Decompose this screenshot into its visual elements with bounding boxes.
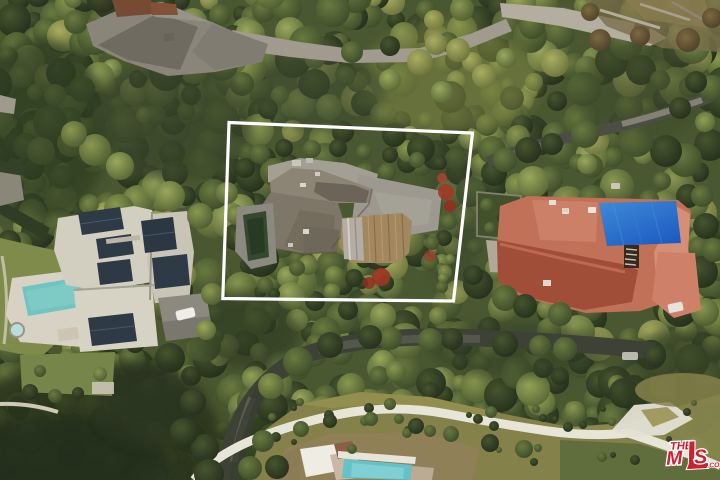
svg-text:M: M [666, 447, 684, 470]
svg-text:S: S [694, 446, 708, 469]
svg-text:.COM: .COM [707, 462, 720, 470]
